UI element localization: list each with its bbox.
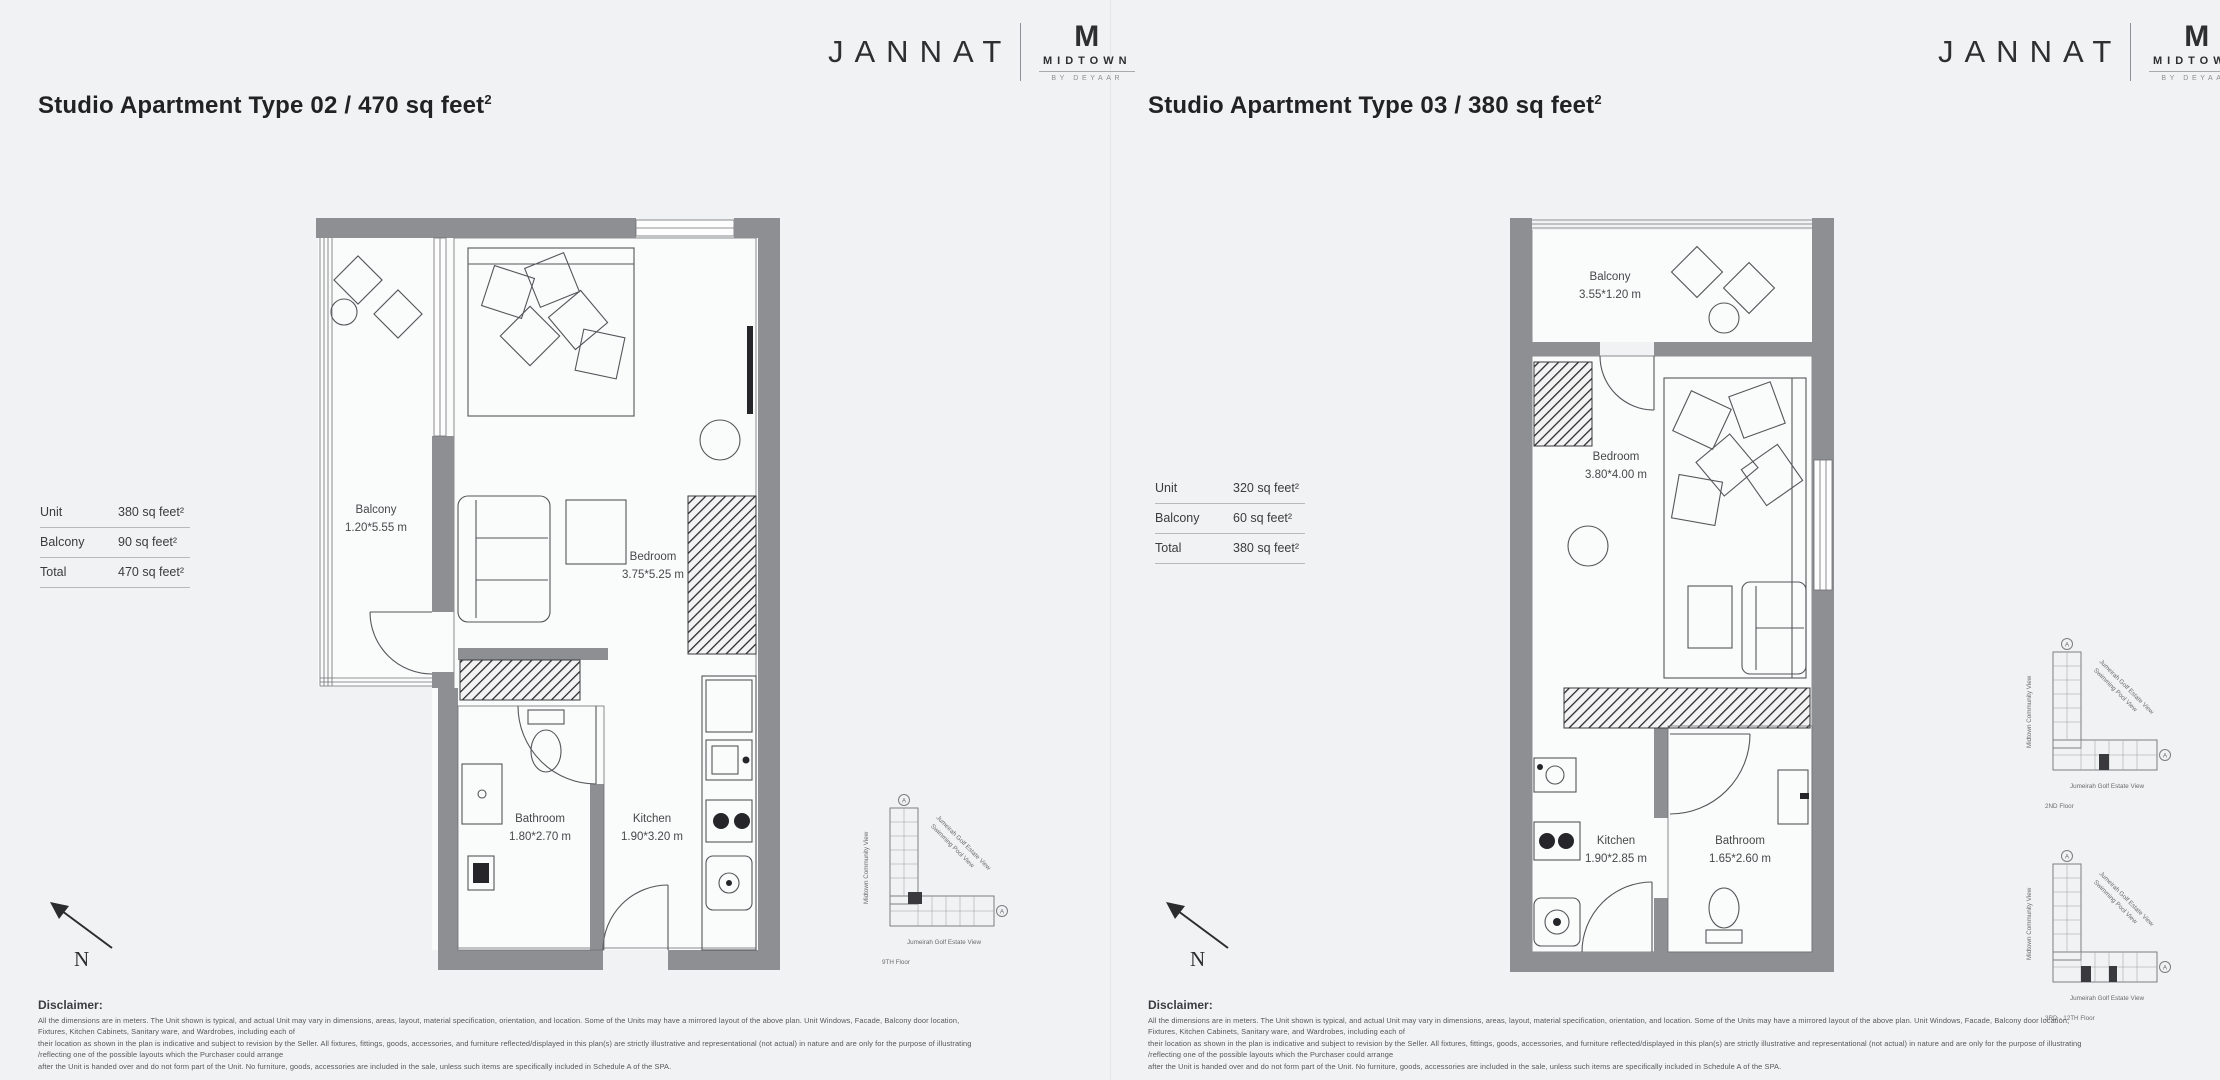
kitchen-label: Kitchen: [633, 813, 671, 825]
disclaimer-line: after the Unit is handed over and do not…: [1148, 1061, 2098, 1072]
balcony-dims: 1.20*5.55 m: [345, 522, 407, 534]
page-title: Studio Apartment Type 03 / 380 sq feet2: [1148, 92, 1602, 120]
floor-caption: 2ND Floor: [2045, 803, 2074, 810]
badge-letter: A: [2163, 965, 2168, 972]
svg-text:Jumeirah Golf Estate View: Jumeirah Golf Estate View: [2098, 870, 2156, 928]
stat-label: Total: [1155, 541, 1233, 555]
view-label-left: Midtown Community View: [863, 831, 870, 904]
kitchen-counter: [1564, 688, 1810, 728]
badge-letter: A: [902, 798, 907, 805]
disclaimer: Disclaimer: All the dimensions are in me…: [1148, 998, 2098, 1072]
wardrobe: [1534, 362, 1592, 446]
disclaimer-line: their location as shown in the plan is i…: [38, 1038, 988, 1061]
table-row: Balcony 90 sq feet²: [40, 528, 190, 558]
table-row: Total 380 sq feet²: [1155, 534, 1305, 564]
utility-closet: [460, 660, 580, 700]
area-table: Unit 380 sq feet² Balcony 90 sq feet² To…: [40, 498, 190, 588]
stat-label: Balcony: [1155, 511, 1233, 525]
disclaimer-heading: Disclaimer:: [1148, 998, 2098, 1012]
brand-logo: JANNAT M MIDTOWN BY DEYAAR: [828, 22, 1135, 82]
svg-text:Jumeirah Golf Estate View: Jumeirah Golf Estate View: [935, 814, 993, 872]
unit-location-marker: [2109, 966, 2117, 982]
unit-location-marker: [908, 892, 922, 904]
brand-wordmark: JANNAT: [1938, 34, 2122, 70]
panel-type-02: JANNAT M MIDTOWN BY DEYAAR Studio Apartm…: [0, 0, 1110, 1080]
tv-unit: [747, 326, 753, 414]
disclaimer-line: after the Unit is handed over and do not…: [38, 1061, 988, 1072]
stat-value: 320 sq feet²: [1233, 481, 1305, 495]
north-label: N: [74, 947, 89, 970]
balcony-label: Balcony: [1590, 271, 1631, 283]
table-row: Unit 320 sq feet²: [1155, 474, 1305, 504]
title-text: Studio Apartment Type 02 / 470 sq feet: [38, 92, 484, 119]
stat-value: 380 sq feet²: [118, 505, 190, 519]
kitchen-label: Kitchen: [1597, 835, 1635, 847]
badge-letter: A: [2163, 753, 2168, 760]
north-arrow-icon: N: [1152, 896, 1244, 970]
view-label-bottom: Jumeirah Golf Estate View: [2070, 783, 2145, 790]
bedroom-dims: 3.80*4.00 m: [1585, 469, 1647, 481]
title-superscript: 2: [1594, 92, 1601, 107]
floor-plan-type-02: Bedroom 3.75*5.25 m Balcony 1.20*5.55 m …: [300, 208, 800, 978]
north-label: N: [1190, 947, 1205, 970]
brand-wordmark: JANNAT: [828, 34, 1012, 70]
view-labels-diagonal: Jumeirah Golf Estate View Swimming Pool …: [928, 814, 993, 879]
kitchen-dims: 1.90*2.85 m: [1585, 853, 1647, 865]
bedroom-label: Bedroom: [630, 551, 677, 563]
kitchen-dims: 1.90*3.20 m: [621, 831, 683, 843]
midtown-label: MIDTOWN: [2153, 56, 2220, 67]
panel-type-03: JANNAT M MIDTOWN BY DEYAAR Studio Apartm…: [1110, 0, 2220, 1080]
midtown-monogram-icon: M: [2184, 22, 2210, 52]
unit-location-marker: [2099, 754, 2109, 770]
title-text: Studio Apartment Type 03 / 380 sq feet: [1148, 92, 1594, 119]
disclaimer-line: their location as shown in the plan is i…: [1148, 1038, 2098, 1061]
balcony-label: Balcony: [356, 504, 397, 516]
table-row: Total 470 sq feet²: [40, 558, 190, 588]
brand-logo: JANNAT M MIDTOWN BY DEYAAR: [1938, 22, 2220, 82]
unit-location-marker: [2081, 966, 2091, 982]
midtown-monogram-icon: M: [1074, 22, 1100, 52]
badge-letter: A: [1000, 909, 1005, 916]
area-table: Unit 320 sq feet² Balcony 60 sq feet² To…: [1155, 474, 1305, 564]
north-arrow-icon: N: [36, 896, 128, 970]
byline-label: BY DEYAAR: [2161, 75, 2220, 82]
disclaimer-heading: Disclaimer:: [38, 998, 988, 1012]
disclaimer-line: All the dimensions are in meters. The Un…: [1148, 1015, 2098, 1038]
view-label-bottom: Jumeirah Golf Estate View: [907, 939, 982, 946]
bathroom-dims: 1.80*2.70 m: [509, 831, 571, 843]
key-plan: A A Midtown Community View Jumeirah Golf…: [2015, 636, 2183, 824]
stat-label: Total: [40, 565, 118, 579]
wardrobe: [688, 496, 756, 654]
bedroom-dims: 3.75*5.25 m: [622, 569, 684, 581]
stat-value: 470 sq feet²: [118, 565, 190, 579]
table-row: Unit 380 sq feet²: [40, 498, 190, 528]
bathroom-label: Bathroom: [515, 813, 565, 825]
logo-divider: [2130, 23, 2131, 81]
logo-rule: [2149, 71, 2220, 72]
view-label-left: Midtown Community View: [2026, 675, 2033, 748]
svg-text:Jumeirah Golf Estate View: Jumeirah Golf Estate View: [2098, 658, 2156, 716]
title-superscript: 2: [484, 92, 491, 107]
stat-value: 380 sq feet²: [1233, 541, 1305, 555]
page-title: Studio Apartment Type 02 / 470 sq feet2: [38, 92, 492, 120]
bedroom-label: Bedroom: [1593, 451, 1640, 463]
stat-label: Unit: [1155, 481, 1233, 495]
view-labels-diagonal: Jumeirah Golf Estate View Swimming Pool …: [2091, 658, 2156, 723]
stat-label: Balcony: [40, 535, 118, 549]
view-labels-diagonal: Jumeirah Golf Estate View Swimming Pool …: [2091, 870, 2156, 935]
table-row: Balcony 60 sq feet²: [1155, 504, 1305, 534]
key-plan: A A Midtown Community View Jumeirah Golf…: [852, 792, 1020, 980]
stat-value: 90 sq feet²: [118, 535, 190, 549]
bathroom-dims: 1.65*2.60 m: [1709, 853, 1771, 865]
view-label-left: Midtown Community View: [2026, 887, 2033, 960]
badge-letter: A: [2065, 854, 2070, 861]
balcony-dims: 3.55*1.20 m: [1579, 289, 1641, 301]
disclaimer-line: All the dimensions are in meters. The Un…: [38, 1015, 988, 1038]
stat-value: 60 sq feet²: [1233, 511, 1305, 525]
bathroom-label: Bathroom: [1715, 835, 1765, 847]
midtown-logo: M MIDTOWN BY DEYAAR: [2149, 22, 2220, 82]
logo-divider: [1020, 23, 1021, 81]
badge-letter: A: [2065, 642, 2070, 649]
stat-label: Unit: [40, 505, 118, 519]
floor-plan-type-03: Balcony 3.55*1.20 m Bedroom 3.80*4.00 m …: [1502, 210, 1842, 980]
floor-caption: 9TH Floor: [882, 959, 910, 966]
disclaimer: Disclaimer: All the dimensions are in me…: [38, 998, 988, 1072]
brochure-sheet: JANNAT M MIDTOWN BY DEYAAR Studio Apartm…: [0, 0, 2220, 1080]
balcony-area: [318, 236, 432, 686]
balcony-area: [1532, 230, 1812, 342]
